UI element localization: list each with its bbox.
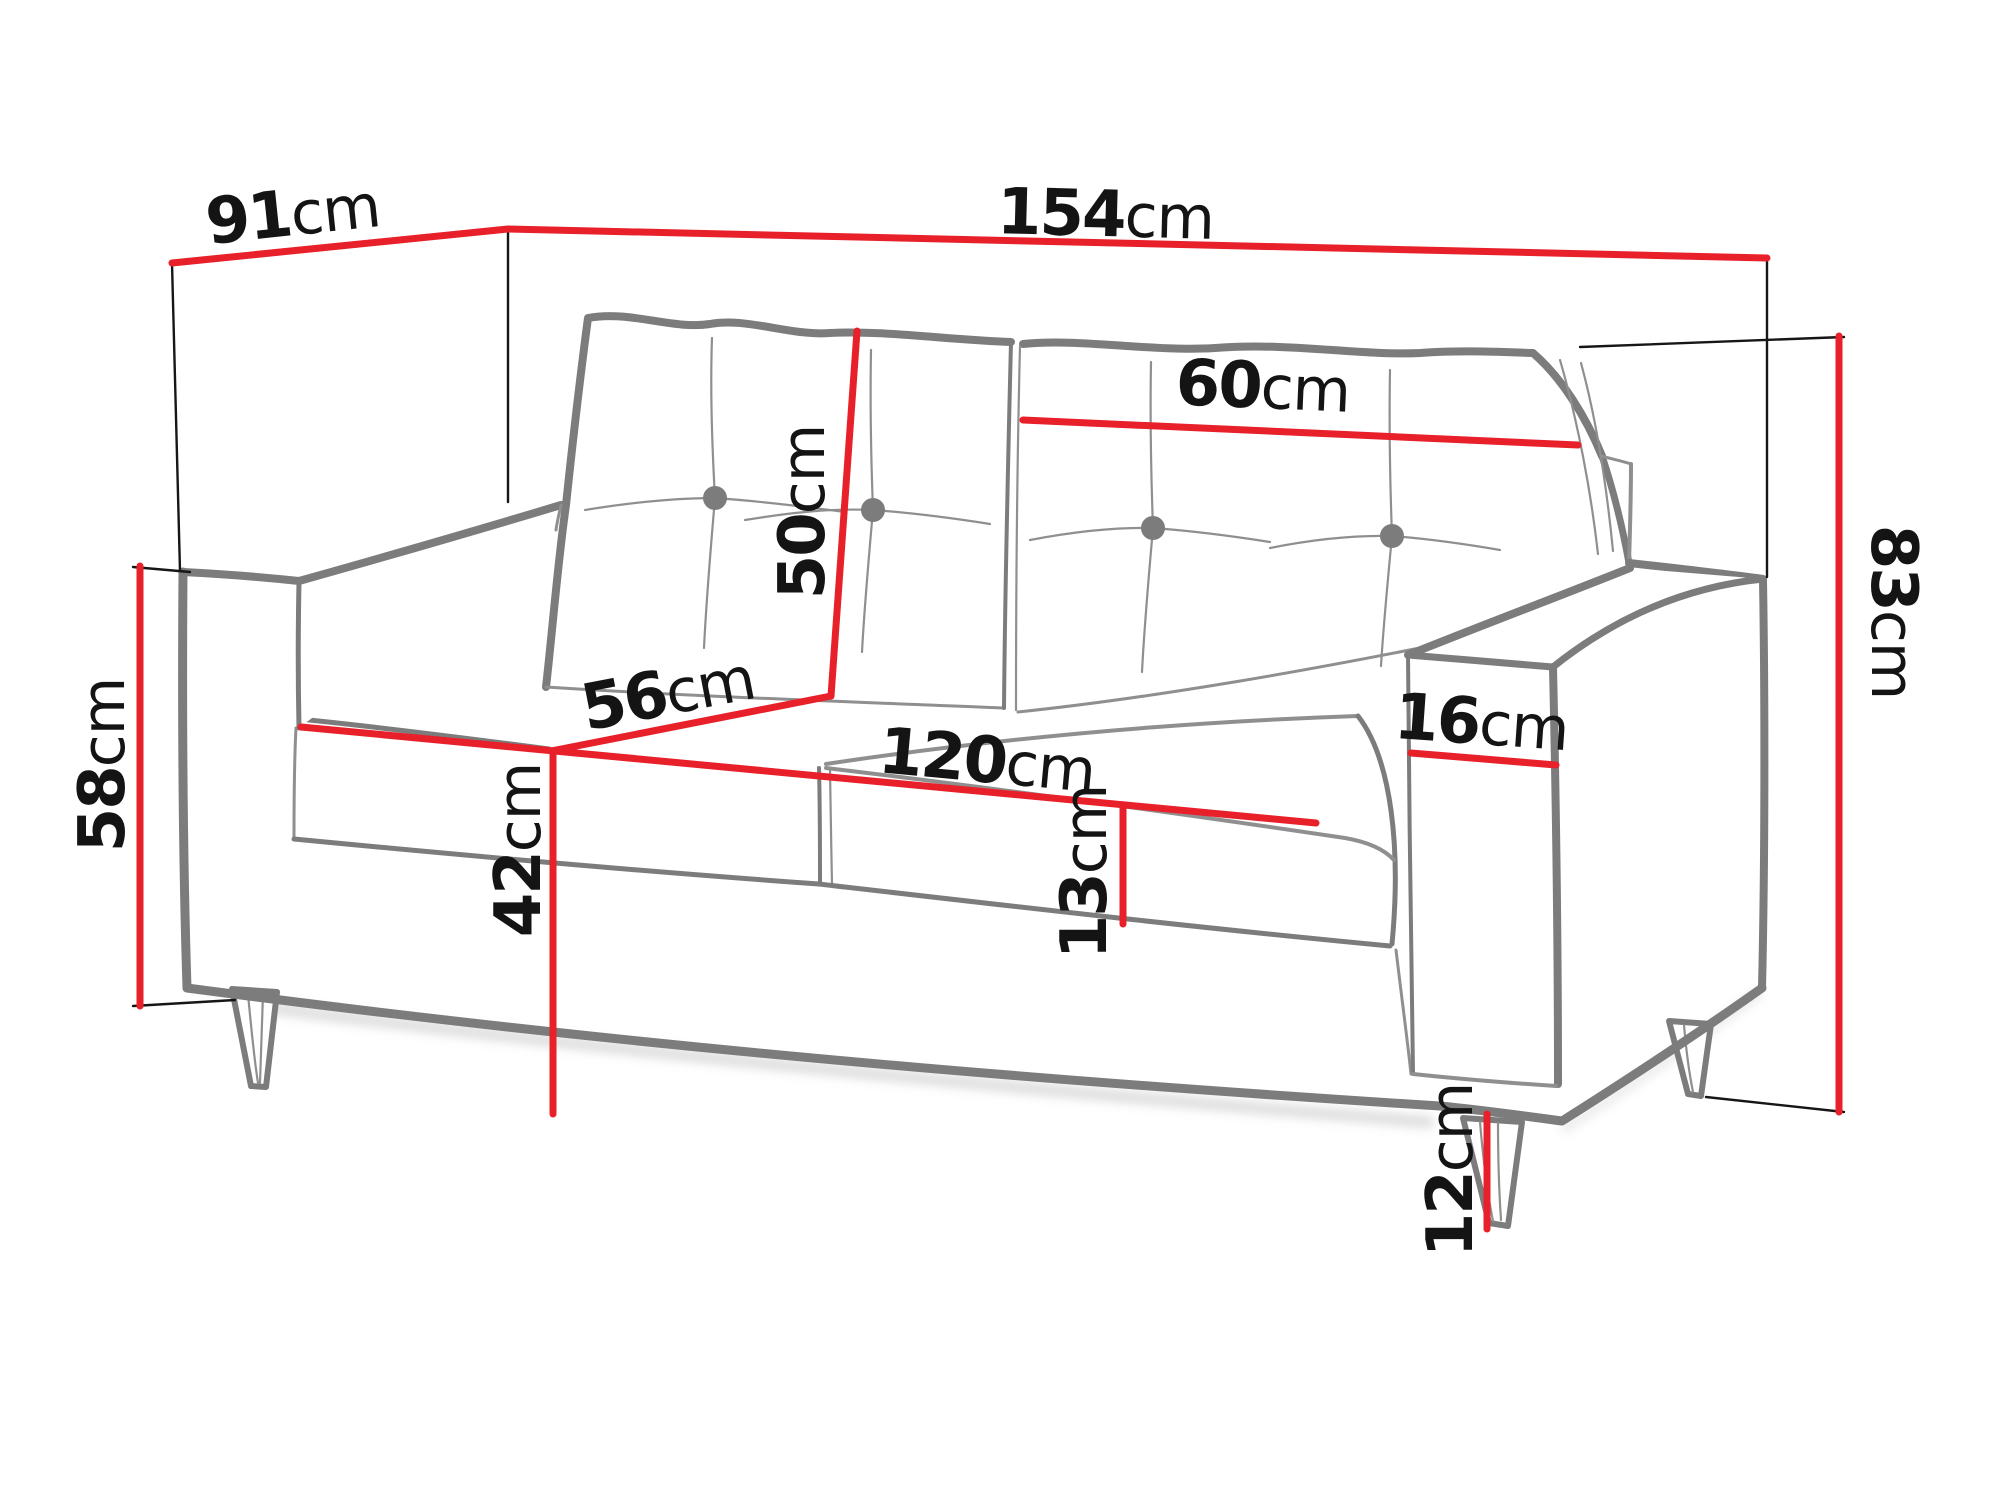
left-arm-top-front-edge <box>183 572 299 581</box>
label-total-height-value: 83 <box>1856 525 1930 610</box>
extension-total-height-bottom <box>1706 1097 1844 1112</box>
diagram-canvas: 91cm 154cm 60cm 50cm 56cm 58cm 16cm 83cm… <box>0 0 2000 1500</box>
label-pillow-width: 60cm <box>1174 346 1352 428</box>
label-cushion-thickness-value: 13 <box>1048 874 1122 959</box>
label-total-height-unit: cm <box>1857 610 1927 699</box>
label-total-depth-unit: cm <box>287 171 383 250</box>
label-leg-height-value: 12 <box>1414 1172 1488 1257</box>
label-armrest-width-unit: cm <box>1477 689 1571 765</box>
label-seat-width-value: 120 <box>875 714 1009 799</box>
label-cushion-thickness-unit: cm <box>1051 785 1121 874</box>
label-cushion-thickness: 13cm <box>1048 785 1122 960</box>
label-total-depth-value: 91 <box>202 178 294 260</box>
tuft-button-2 <box>861 498 885 522</box>
label-pillow-width-value: 60 <box>1174 346 1262 424</box>
extension-arm-height-bottom <box>133 1000 235 1006</box>
left-cushion-left-edge <box>294 728 296 839</box>
label-total-height: 83cm <box>1856 525 1930 700</box>
label-pillow-height-value: 50 <box>766 514 840 599</box>
left-arm-inner-fill <box>299 505 561 728</box>
label-armrest-width: 16cm <box>1392 680 1571 766</box>
label-arm-height-unit: cm <box>69 678 139 767</box>
left-arm-outer-edge <box>183 572 187 988</box>
left-arm <box>183 505 561 728</box>
dimension-line-seat-width <box>301 727 1316 823</box>
base-arm-seam <box>1396 950 1411 1074</box>
tuft-button-1 <box>703 486 727 510</box>
label-total-width-value: 154 <box>996 175 1125 252</box>
backrest-corner-edge <box>1629 464 1631 563</box>
label-arm-height: 58cm <box>66 678 140 853</box>
label-arm-height-value: 58 <box>66 767 140 852</box>
leg-front-left <box>232 989 277 1087</box>
left-arm-front-inner-edge <box>298 581 299 728</box>
label-seat-height-unit: cm <box>485 763 555 852</box>
sofa-right-outer-edge <box>1762 580 1764 988</box>
label-total-width: 154cm <box>996 175 1215 255</box>
label-seat-height: 42cm <box>482 763 556 938</box>
label-pillow-height-unit: cm <box>769 425 839 514</box>
sofa-dimension-diagram: 91cm 154cm 60cm 50cm 56cm 58cm 16cm 83cm… <box>0 0 2000 1500</box>
label-leg-height: 12cm <box>1414 1083 1488 1258</box>
tuft-button-4 <box>1380 524 1404 548</box>
extension-depth-left <box>172 263 180 571</box>
right-cushion-end-curve <box>1358 716 1395 944</box>
label-total-width-unit: cm <box>1124 182 1215 254</box>
label-pillow-height: 50cm <box>766 425 840 600</box>
label-seat-height-value: 42 <box>482 852 556 937</box>
label-pillow-width-unit: cm <box>1259 353 1351 427</box>
label-armrest-width-value: 16 <box>1392 680 1482 760</box>
label-leg-height-unit: cm <box>1417 1083 1487 1172</box>
right-arm <box>1408 568 1763 1086</box>
cushion-center-seam <box>819 768 820 884</box>
dimension-labels: 91cm 154cm 60cm 50cm 56cm 58cm 16cm 83cm… <box>66 168 1930 1257</box>
tuft-button-3 <box>1141 516 1165 540</box>
cushion-center-seam-inner <box>830 770 832 884</box>
extension-total-height-top <box>1580 337 1844 347</box>
